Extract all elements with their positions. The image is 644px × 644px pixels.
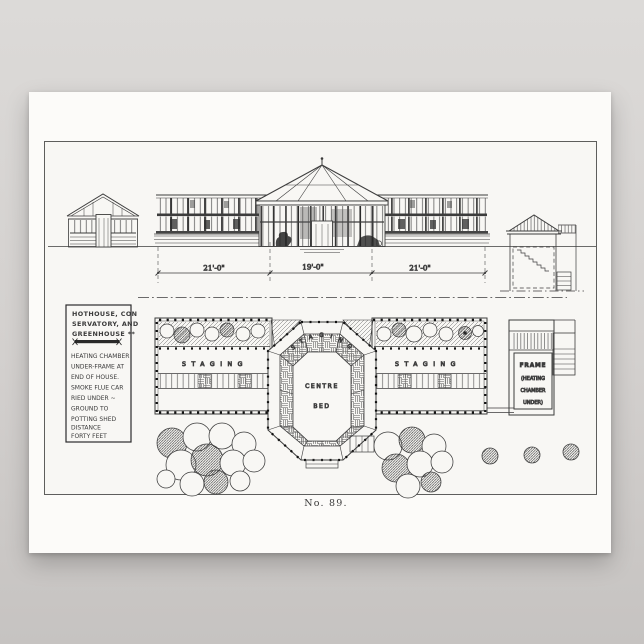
legend-title-2: SERVATORY, AND <box>72 320 139 328</box>
frame-label-1: FRAME <box>520 363 547 369</box>
central-octagon: STAGING CENTRE BED <box>268 320 376 468</box>
frame-label-2: (HEATING <box>521 376 545 382</box>
legend-body-3: END OF HOUSE. <box>71 374 119 381</box>
frame-label-3: CHAMBER <box>520 388 546 394</box>
centre-label: CENTRE <box>305 383 339 390</box>
architectural-drawing: 21'-0" 19'-0" 21'-0" HOTHOUSE, CON SERVA… <box>0 0 644 644</box>
plate-number-caption: No. 89. <box>304 498 347 509</box>
legend-body-9: FORTY FEET <box>71 433 107 440</box>
legend-body-2: UNDER-FRAME AT <box>71 364 124 371</box>
legend-body-1: HEATING CHAMBER <box>71 353 129 360</box>
legend-body-4: SMOKE FLUE CAR <box>71 385 123 392</box>
photo-backdrop: 21'-0" 19'-0" 21'-0" HOTHOUSE, CON SERVA… <box>0 0 644 644</box>
dimension-right-label: 21'-0" <box>409 264 430 273</box>
legend-body-6: GROUND TO <box>71 406 109 413</box>
legend-body-7: POTTING SHED <box>71 416 116 423</box>
staging-left-label: STAGING <box>182 361 248 368</box>
staging-right-label: STAGING <box>395 361 461 368</box>
frame-label-4: UNDER) <box>523 400 543 406</box>
dimension-centre-label: 19'-0" <box>302 263 323 272</box>
dimension-left-label: 21'-0" <box>203 264 224 273</box>
legend-panel: HOTHOUSE, CON SERVATORY, AND GREENHOUSE … <box>66 305 139 442</box>
legend-title-1: HOTHOUSE, CON <box>72 310 137 318</box>
centre-bed <box>293 352 351 441</box>
bed-label: BED <box>313 403 330 410</box>
legend-title-3: GREENHOUSE ** <box>72 330 136 338</box>
legend-body-5: RIED UNDER ~ <box>71 395 116 402</box>
legend-body-8: DISTANCE <box>71 425 101 432</box>
